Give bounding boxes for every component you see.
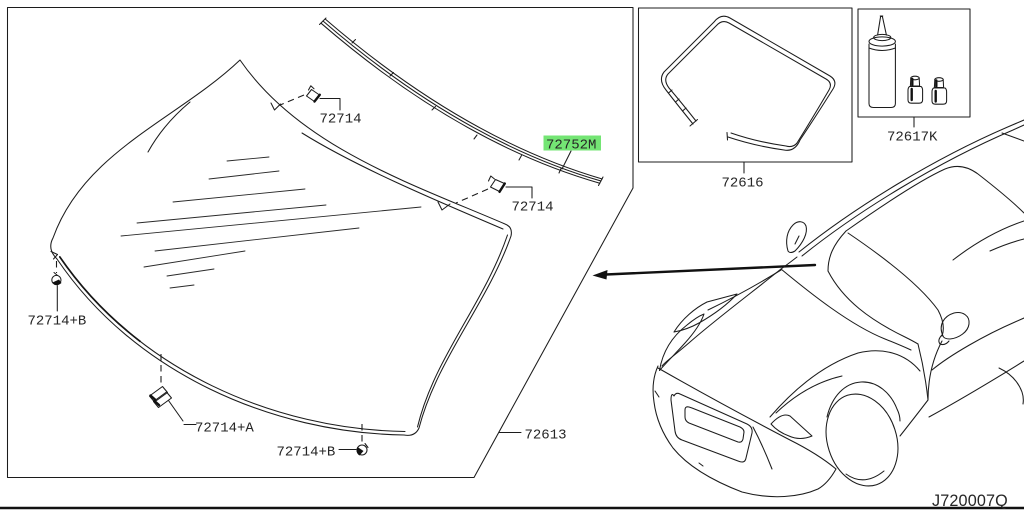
svg-text:72714+B: 72714+B bbox=[28, 314, 87, 330]
svg-text:72714: 72714 bbox=[512, 200, 554, 216]
svg-text:72714+B: 72714+B bbox=[277, 445, 336, 461]
svg-text:J720007Q: J720007Q bbox=[932, 492, 1008, 510]
svg-text:72714: 72714 bbox=[320, 112, 362, 128]
svg-text:72714+A: 72714+A bbox=[195, 421, 254, 437]
svg-text:72613: 72613 bbox=[525, 428, 567, 444]
svg-text:72617K: 72617K bbox=[887, 130, 938, 146]
svg-text:72616: 72616 bbox=[722, 176, 764, 192]
